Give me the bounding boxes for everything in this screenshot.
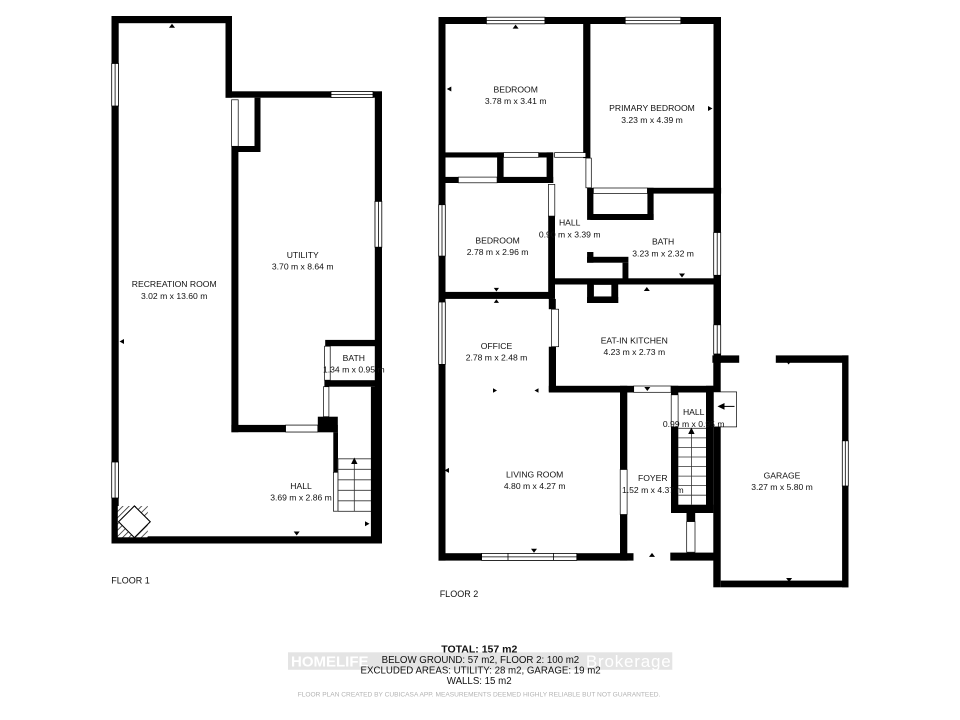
svg-text:1.34 m x 0.95 m: 1.34 m x 0.95 m: [323, 365, 385, 375]
svg-text:3.23 m x 4.39 m: 3.23 m x 4.39 m: [621, 115, 683, 125]
svg-text:0.99 m x 0.95 m: 0.99 m x 0.95 m: [663, 419, 725, 429]
svg-text:FLOOR 1: FLOOR 1: [111, 576, 150, 586]
svg-text:GARAGE: GARAGE: [764, 470, 801, 480]
svg-text:RECREATION ROOM: RECREATION ROOM: [132, 279, 217, 289]
svg-text:3.23 m x 2.32 m: 3.23 m x 2.32 m: [632, 248, 694, 258]
svg-text:3.69 m x 2.86 m: 3.69 m x 2.86 m: [270, 493, 332, 503]
svg-text:2.78 m x 2.48 m: 2.78 m x 2.48 m: [466, 353, 528, 363]
svg-text:FLOOR PLAN CREATED BY CUBICASA: FLOOR PLAN CREATED BY CUBICASA APP. MEAS…: [298, 691, 661, 698]
svg-text:LIVING ROOM: LIVING ROOM: [506, 469, 563, 479]
svg-text:HALL: HALL: [683, 407, 705, 417]
svg-text:BATH: BATH: [343, 353, 365, 363]
svg-text:OFFICE: OFFICE: [481, 341, 513, 351]
svg-text:FLOOR 2: FLOOR 2: [440, 589, 479, 599]
svg-text:HALL: HALL: [290, 481, 312, 491]
svg-text:0.90 m x 3.39 m: 0.90 m x 3.39 m: [539, 229, 601, 239]
svg-text:4.80 m x 4.27 m: 4.80 m x 4.27 m: [504, 481, 566, 491]
svg-text:2.78 m x 2.96 m: 2.78 m x 2.96 m: [467, 247, 529, 257]
svg-text:FOYER: FOYER: [638, 473, 668, 483]
svg-text:UTILITY: UTILITY: [287, 250, 319, 260]
svg-text:3.70 m x 8.64 m: 3.70 m x 8.64 m: [272, 262, 334, 272]
svg-text:BEDROOM: BEDROOM: [475, 236, 519, 246]
svg-text:3.78 m x 3.41 m: 3.78 m x 3.41 m: [485, 96, 547, 106]
svg-text:BATH: BATH: [652, 237, 674, 247]
svg-text:TOTAL: 157 m2: TOTAL: 157 m2: [441, 644, 517, 656]
svg-text:4.23 m x 2.73 m: 4.23 m x 2.73 m: [603, 347, 665, 357]
svg-text:EXCLUDED AREAS: UTILITY: 28 m2: EXCLUDED AREAS: UTILITY: 28 m2, GARAGE: …: [361, 665, 601, 676]
svg-text:3.27 m x 5.80 m: 3.27 m x 5.80 m: [751, 482, 813, 492]
svg-text:HOMELIFE: HOMELIFE: [291, 654, 369, 671]
svg-text:BEDROOM: BEDROOM: [493, 85, 537, 95]
svg-text:BELOW GROUND: 57 m2, FLOOR 2:: BELOW GROUND: 57 m2, FLOOR 2: 100 m2: [382, 655, 580, 666]
svg-text:3.02 m x 13.60 m: 3.02 m x 13.60 m: [141, 291, 207, 301]
svg-text:1.52 m x 4.37 m: 1.52 m x 4.37 m: [622, 485, 684, 495]
svg-text:EAT-IN KITCHEN: EAT-IN KITCHEN: [601, 335, 668, 345]
svg-text:PRIMARY BEDROOM: PRIMARY BEDROOM: [609, 103, 695, 113]
svg-text:WALLS: 15 m2: WALLS: 15 m2: [447, 676, 512, 687]
svg-text:HALL: HALL: [559, 218, 581, 228]
